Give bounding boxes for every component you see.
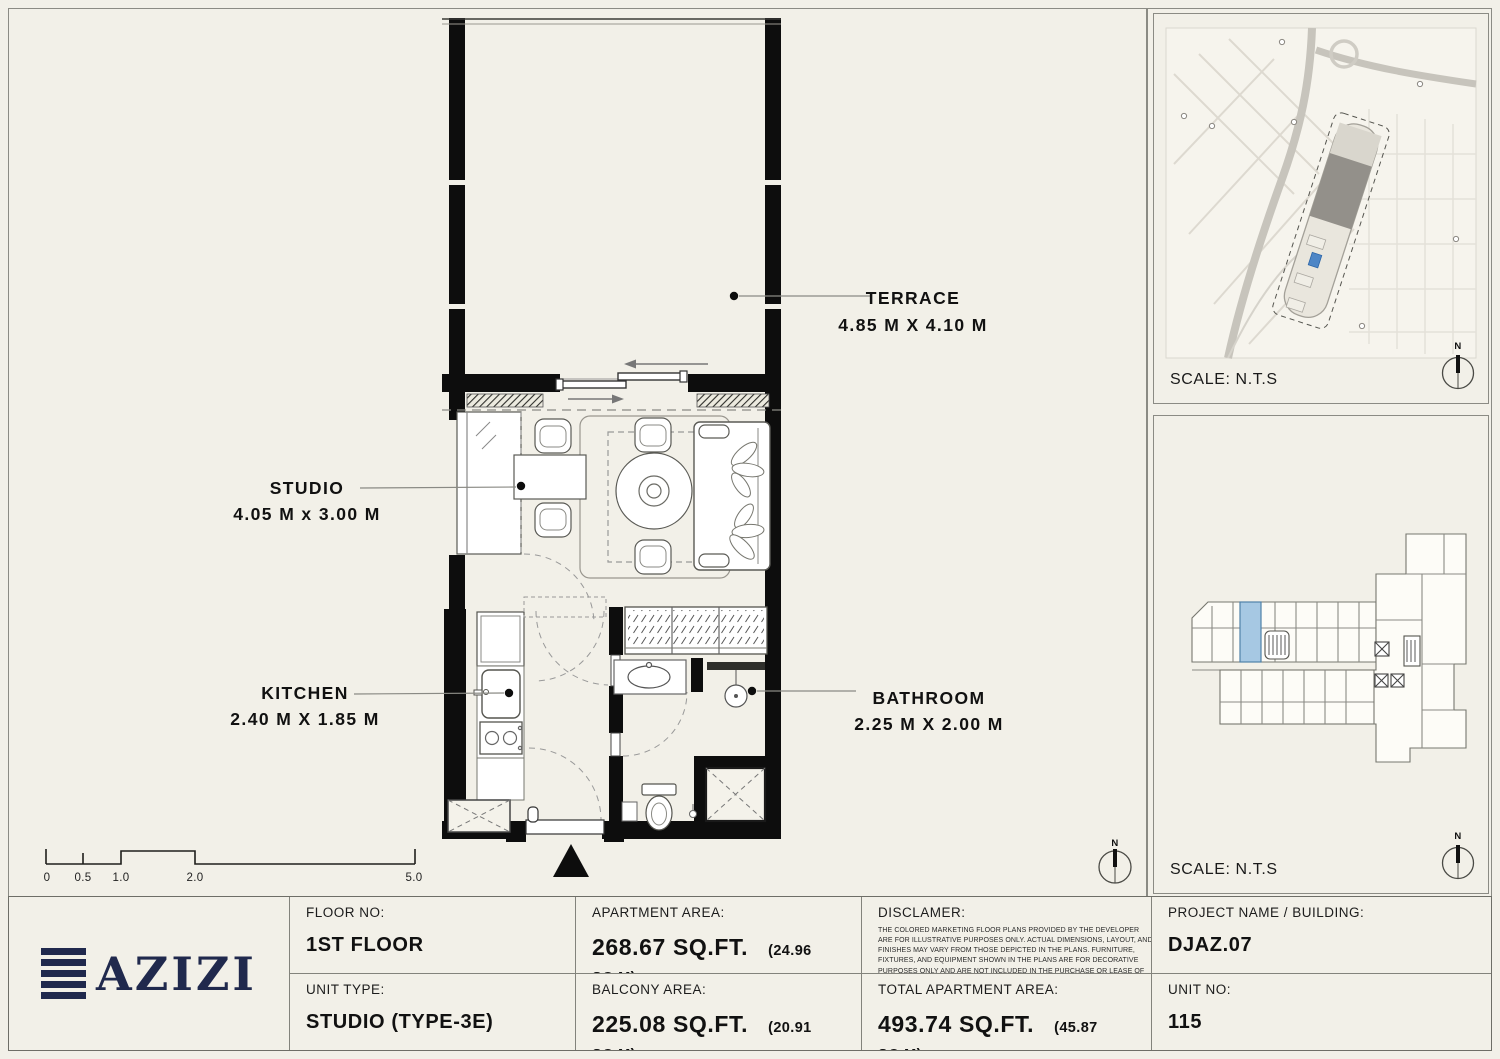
floorplan-drawing: TERRACE 4.85 M X 4.10 M STUDIO 4.05 M x … [8,8,1146,896]
closet [625,607,767,654]
apartment-area-cell: APARTMENT AREA: 268.67 SQ.FT.(24.96 SQ.M… [576,897,862,974]
stove [480,722,522,754]
service-shaft-kitchen [448,800,510,832]
project-name-label: PROJECT NAME / BUILDING: [1168,905,1475,920]
floor-no-cell: FLOOR NO: 1ST FLOOR [290,897,576,974]
developer-logo: AZIZI [9,897,290,1050]
azizi-logo-text: AZIZI [96,951,257,997]
total-area-cell: TOTAL APARTMENT AREA: 493.74 SQ.FT.(45.8… [862,974,1152,1050]
sofa [694,422,770,570]
keyplan-highlighted-unit [1240,602,1261,662]
unit-no-value: 115 [1168,1011,1475,1034]
location-map-panel: SCALE: N.T.S N [1153,13,1489,404]
total-area-label: TOTAL APARTMENT AREA: [878,982,1135,997]
scale-tick-50: 5.0 [406,872,423,884]
unit-type-label: UNIT TYPE: [306,982,559,997]
unit-no-label: UNIT NO: [1168,982,1475,997]
keyplan-stairs2-icon [1404,636,1420,666]
bathroom-dims: 2.25 M X 2.00 M [854,714,1003,734]
keyplan-lower-band [1220,670,1376,724]
sill-hatch-left [467,394,543,407]
scale-tick-05: 0.5 [75,872,92,884]
service-shaft-bathroom [706,768,765,821]
balcony-area-cell: BALCONY AREA: 225.08 SQ.FT.(20.91 SQ.M) [576,974,862,1050]
svg-text:N: N [1454,341,1461,352]
disclaimer-text: THE COLORED MARKETING FLOOR PLANS PROVID… [878,926,1152,974]
wardrobe [457,412,521,554]
studio-furniture [457,412,770,624]
svg-text:N: N [1454,831,1461,842]
kitchen-name: KITCHEN [261,683,349,703]
unit-no-cell: UNIT NO: 115 [1152,974,1491,1050]
disclaimer-label: DISCLAMER: [878,905,1135,920]
scale-tick-0: 0 [44,872,51,884]
project-name-value: DJAZ.07 [1168,934,1475,957]
floor-no-value: 1ST FLOOR [306,934,559,957]
map-scale-label: SCALE: N.T.S [1170,371,1278,389]
keyplan-scale-label: SCALE: N.T.S [1170,861,1278,879]
entrance-arrow-icon [553,844,589,877]
keyplan-north-compass-icon: N [1436,829,1480,887]
apartment-area-value: 268.67 SQ.FT.(24.96 SQ.M) [592,934,845,974]
label-bathroom: BATHROOM 2.25 M X 2.00 M [748,687,1004,734]
studio-dims: 4.05 M x 3.00 M [233,504,380,524]
scale-bar: 0 0.5 1.0 2.0 5.0 [44,849,423,884]
floor-no-label: FLOOR NO: [306,905,559,920]
unit-type-value: STUDIO (TYPE-3E) [306,1011,559,1034]
map-north-compass-icon: N [1436,339,1480,397]
round-table [616,453,692,529]
disclaimer-cell: DISCLAMER: THE COLORED MARKETING FLOOR P… [862,897,1152,974]
studio-name: STUDIO [270,478,345,498]
title-block-table: AZIZI FLOOR NO: 1ST FLOOR APARTMENT AREA… [8,896,1492,1051]
floorplan-sheet: TERRACE 4.85 M X 4.10 M STUDIO 4.05 M x … [0,0,1500,1059]
vanity-sink [614,660,686,694]
north-compass-icon: N [1099,838,1131,883]
floorplan-svg: TERRACE 4.85 M X 4.10 M STUDIO 4.05 M x … [8,8,1146,896]
terrace-dims: 4.85 M X 4.10 M [838,315,987,335]
shower [707,662,765,707]
entrance-door [526,655,620,834]
project-name-cell: PROJECT NAME / BUILDING: DJAZ.07 [1152,897,1491,974]
balcony-area-value: 225.08 SQ.FT.(20.91 SQ.M) [592,1011,845,1050]
apartment-area-label: APARTMENT AREA: [592,905,845,920]
terrace-area [442,19,781,410]
terrace-name: TERRACE [866,288,960,308]
scale-tick-10: 1.0 [113,872,130,884]
panel-divider-line [1146,8,1148,896]
label-kitchen: KITCHEN 2.40 M X 1.85 M [230,683,513,729]
bathroom-fixtures [614,607,767,830]
side-table [514,455,586,499]
keyplan-stairs-icon [1265,631,1289,659]
unit-type-cell: UNIT TYPE: STUDIO (TYPE-3E) [290,974,576,1050]
sliding-door [556,371,687,390]
svg-text:N: N [1111,838,1118,849]
azizi-bars-icon [41,948,86,999]
kitchen-dims: 2.40 M X 1.85 M [230,709,379,729]
keyplan-panel: SCALE: N.T.S N [1153,415,1489,894]
balcony-area-label: BALCONY AREA: [592,982,845,997]
scale-tick-20: 2.0 [187,872,204,884]
keyplan [1154,416,1487,891]
sill-hatch-right [697,394,769,407]
total-area-value: 493.74 SQ.FT.(45.87 SQ.M) [878,1011,1135,1050]
bathroom-name: BATHROOM [873,688,986,708]
door-swing-arc [524,554,594,624]
